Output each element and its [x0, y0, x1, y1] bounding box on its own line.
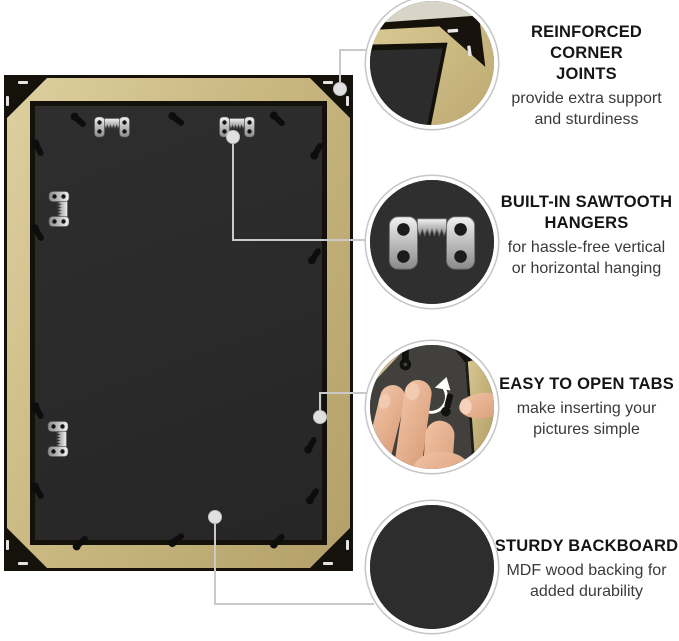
callout-description: for hassle-free vertical or horizontal h…	[494, 237, 679, 279]
callout-text-open-tabs: EASY TO OPEN TABS make inserting your pi…	[494, 374, 679, 440]
callout-title: REINFORCED CORNER JOINTS	[494, 22, 679, 85]
hand-turning-tab-bubble	[370, 345, 494, 469]
callout-description: MDF wood backing for added durability	[494, 560, 679, 602]
callout-text-sawtooth-hangers: BUILT-IN SAWTOOTH HANGERS for hassle-fre…	[494, 192, 679, 279]
staple-icon	[346, 540, 349, 550]
title-line: REINFORCED CORNER	[494, 22, 679, 64]
staple-icon	[323, 81, 333, 84]
callout-text-corner-joints: REINFORCED CORNER JOINTS provide extra s…	[494, 22, 679, 130]
title-line: HANGERS	[494, 213, 679, 234]
callout-line-4	[214, 517, 216, 605]
title-line: JOINTS	[494, 64, 679, 85]
hand-turning-tab-icon	[370, 345, 494, 469]
callout-line-2	[232, 137, 234, 241]
corner-joint-closeup-icon	[370, 1, 494, 125]
callout-anchor-dot-4	[209, 511, 221, 523]
callout-description: provide extra support and sturdiness	[494, 88, 679, 130]
callout-title: STURDY BACKBOARD	[494, 536, 679, 557]
staple-icon	[18, 81, 28, 84]
callout-line-4	[214, 603, 374, 605]
callout-line-2	[232, 239, 374, 241]
backboard-closeup-icon	[370, 505, 494, 629]
callout-title: EASY TO OPEN TABS	[494, 374, 679, 395]
corner-joint-closeup-bubble	[370, 1, 494, 125]
picture-frame-back	[4, 75, 353, 571]
product-infographic: REINFORCED CORNER JOINTS provide extra s…	[0, 0, 679, 641]
sawtooth-hanger-closeup-bubble	[370, 180, 494, 304]
desc-line: pictures simple	[494, 419, 679, 440]
sawtooth-hanger-closeup-icon	[370, 180, 494, 304]
desc-line: or horizontal hanging	[494, 258, 679, 279]
staple-icon	[18, 562, 28, 565]
staple-icon	[6, 96, 9, 106]
sawtooth-hanger-icon	[47, 421, 69, 457]
callout-line-1	[339, 49, 372, 51]
callout-description: make inserting your pictures simple	[494, 398, 679, 440]
callout-text-backboard: STURDY BACKBOARD MDF wood backing for ad…	[494, 536, 679, 602]
callout-anchor-dot-2	[227, 131, 239, 143]
staple-icon	[6, 540, 9, 550]
desc-line: MDF wood backing for	[494, 560, 679, 581]
frame-backboard	[35, 106, 322, 540]
desc-line: added durability	[494, 581, 679, 602]
sawtooth-hanger-icon	[94, 116, 130, 138]
title-line: BUILT-IN SAWTOOTH	[494, 192, 679, 213]
desc-line: provide extra support	[494, 88, 679, 109]
backboard-closeup-bubble	[370, 505, 494, 629]
callout-line-3	[319, 392, 372, 394]
callout-anchor-dot-1	[334, 83, 346, 95]
sawtooth-hanger-icon	[48, 191, 70, 227]
staple-icon	[323, 562, 333, 565]
callout-anchor-dot-3	[314, 411, 326, 423]
title-line: STURDY BACKBOARD	[494, 536, 679, 557]
desc-line: for hassle-free vertical	[494, 237, 679, 258]
desc-line: and sturdiness	[494, 109, 679, 130]
desc-line: make inserting your	[494, 398, 679, 419]
staple-icon	[346, 96, 349, 106]
callout-title: BUILT-IN SAWTOOTH HANGERS	[494, 192, 679, 234]
title-line: EASY TO OPEN TABS	[494, 374, 679, 395]
